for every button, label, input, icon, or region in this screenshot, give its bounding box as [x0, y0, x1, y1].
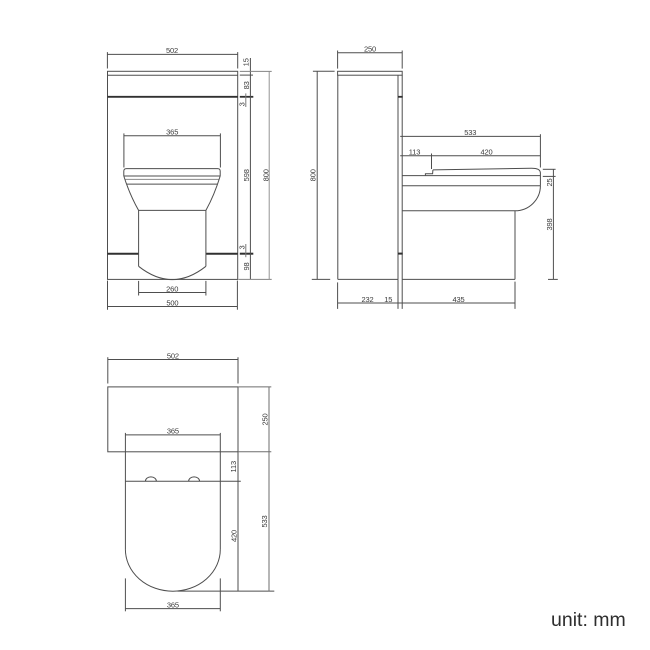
svg-text:435: 435	[452, 295, 464, 304]
svg-text:3: 3	[237, 102, 246, 106]
svg-text:502: 502	[166, 46, 178, 55]
svg-text:260: 260	[166, 284, 178, 293]
svg-text:15: 15	[384, 295, 392, 304]
svg-text:598: 598	[242, 169, 251, 181]
svg-text:113: 113	[229, 461, 238, 473]
svg-text:500: 500	[166, 298, 178, 307]
svg-text:83: 83	[242, 81, 251, 89]
svg-text:98: 98	[242, 262, 251, 270]
svg-text:420: 420	[229, 530, 238, 542]
svg-text:800: 800	[261, 169, 270, 181]
svg-text:250: 250	[260, 413, 269, 425]
svg-text:25: 25	[545, 178, 554, 186]
svg-text:365: 365	[167, 427, 179, 436]
svg-text:113: 113	[409, 148, 421, 157]
svg-text:533: 533	[464, 128, 476, 137]
svg-text:398: 398	[545, 218, 554, 230]
svg-text:420: 420	[480, 148, 492, 157]
svg-text:365: 365	[167, 600, 179, 609]
svg-text:533: 533	[260, 515, 269, 527]
svg-text:800: 800	[309, 169, 318, 181]
svg-text:502: 502	[167, 351, 179, 360]
svg-text:365: 365	[166, 128, 178, 137]
svg-text:15: 15	[241, 58, 250, 66]
svg-text:250: 250	[364, 45, 376, 54]
svg-text:232: 232	[361, 295, 373, 304]
svg-text:unit: mm: unit: mm	[551, 609, 626, 631]
svg-text:3: 3	[237, 245, 246, 249]
